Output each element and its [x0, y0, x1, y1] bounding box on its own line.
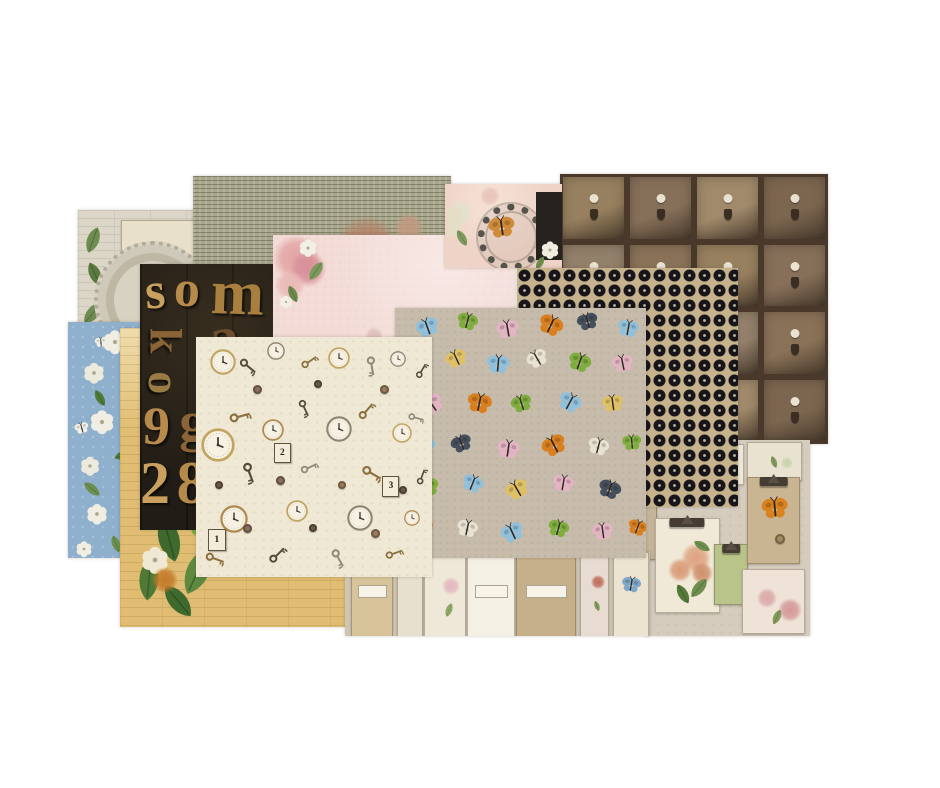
paper-keys-and-clocks: 213 [196, 337, 432, 577]
paper-butterflies [395, 308, 646, 558]
paper-rose-wreath-collage [445, 184, 562, 268]
papers-collage: sokomb5d3zw49grc0j28parn 213 [0, 0, 940, 788]
